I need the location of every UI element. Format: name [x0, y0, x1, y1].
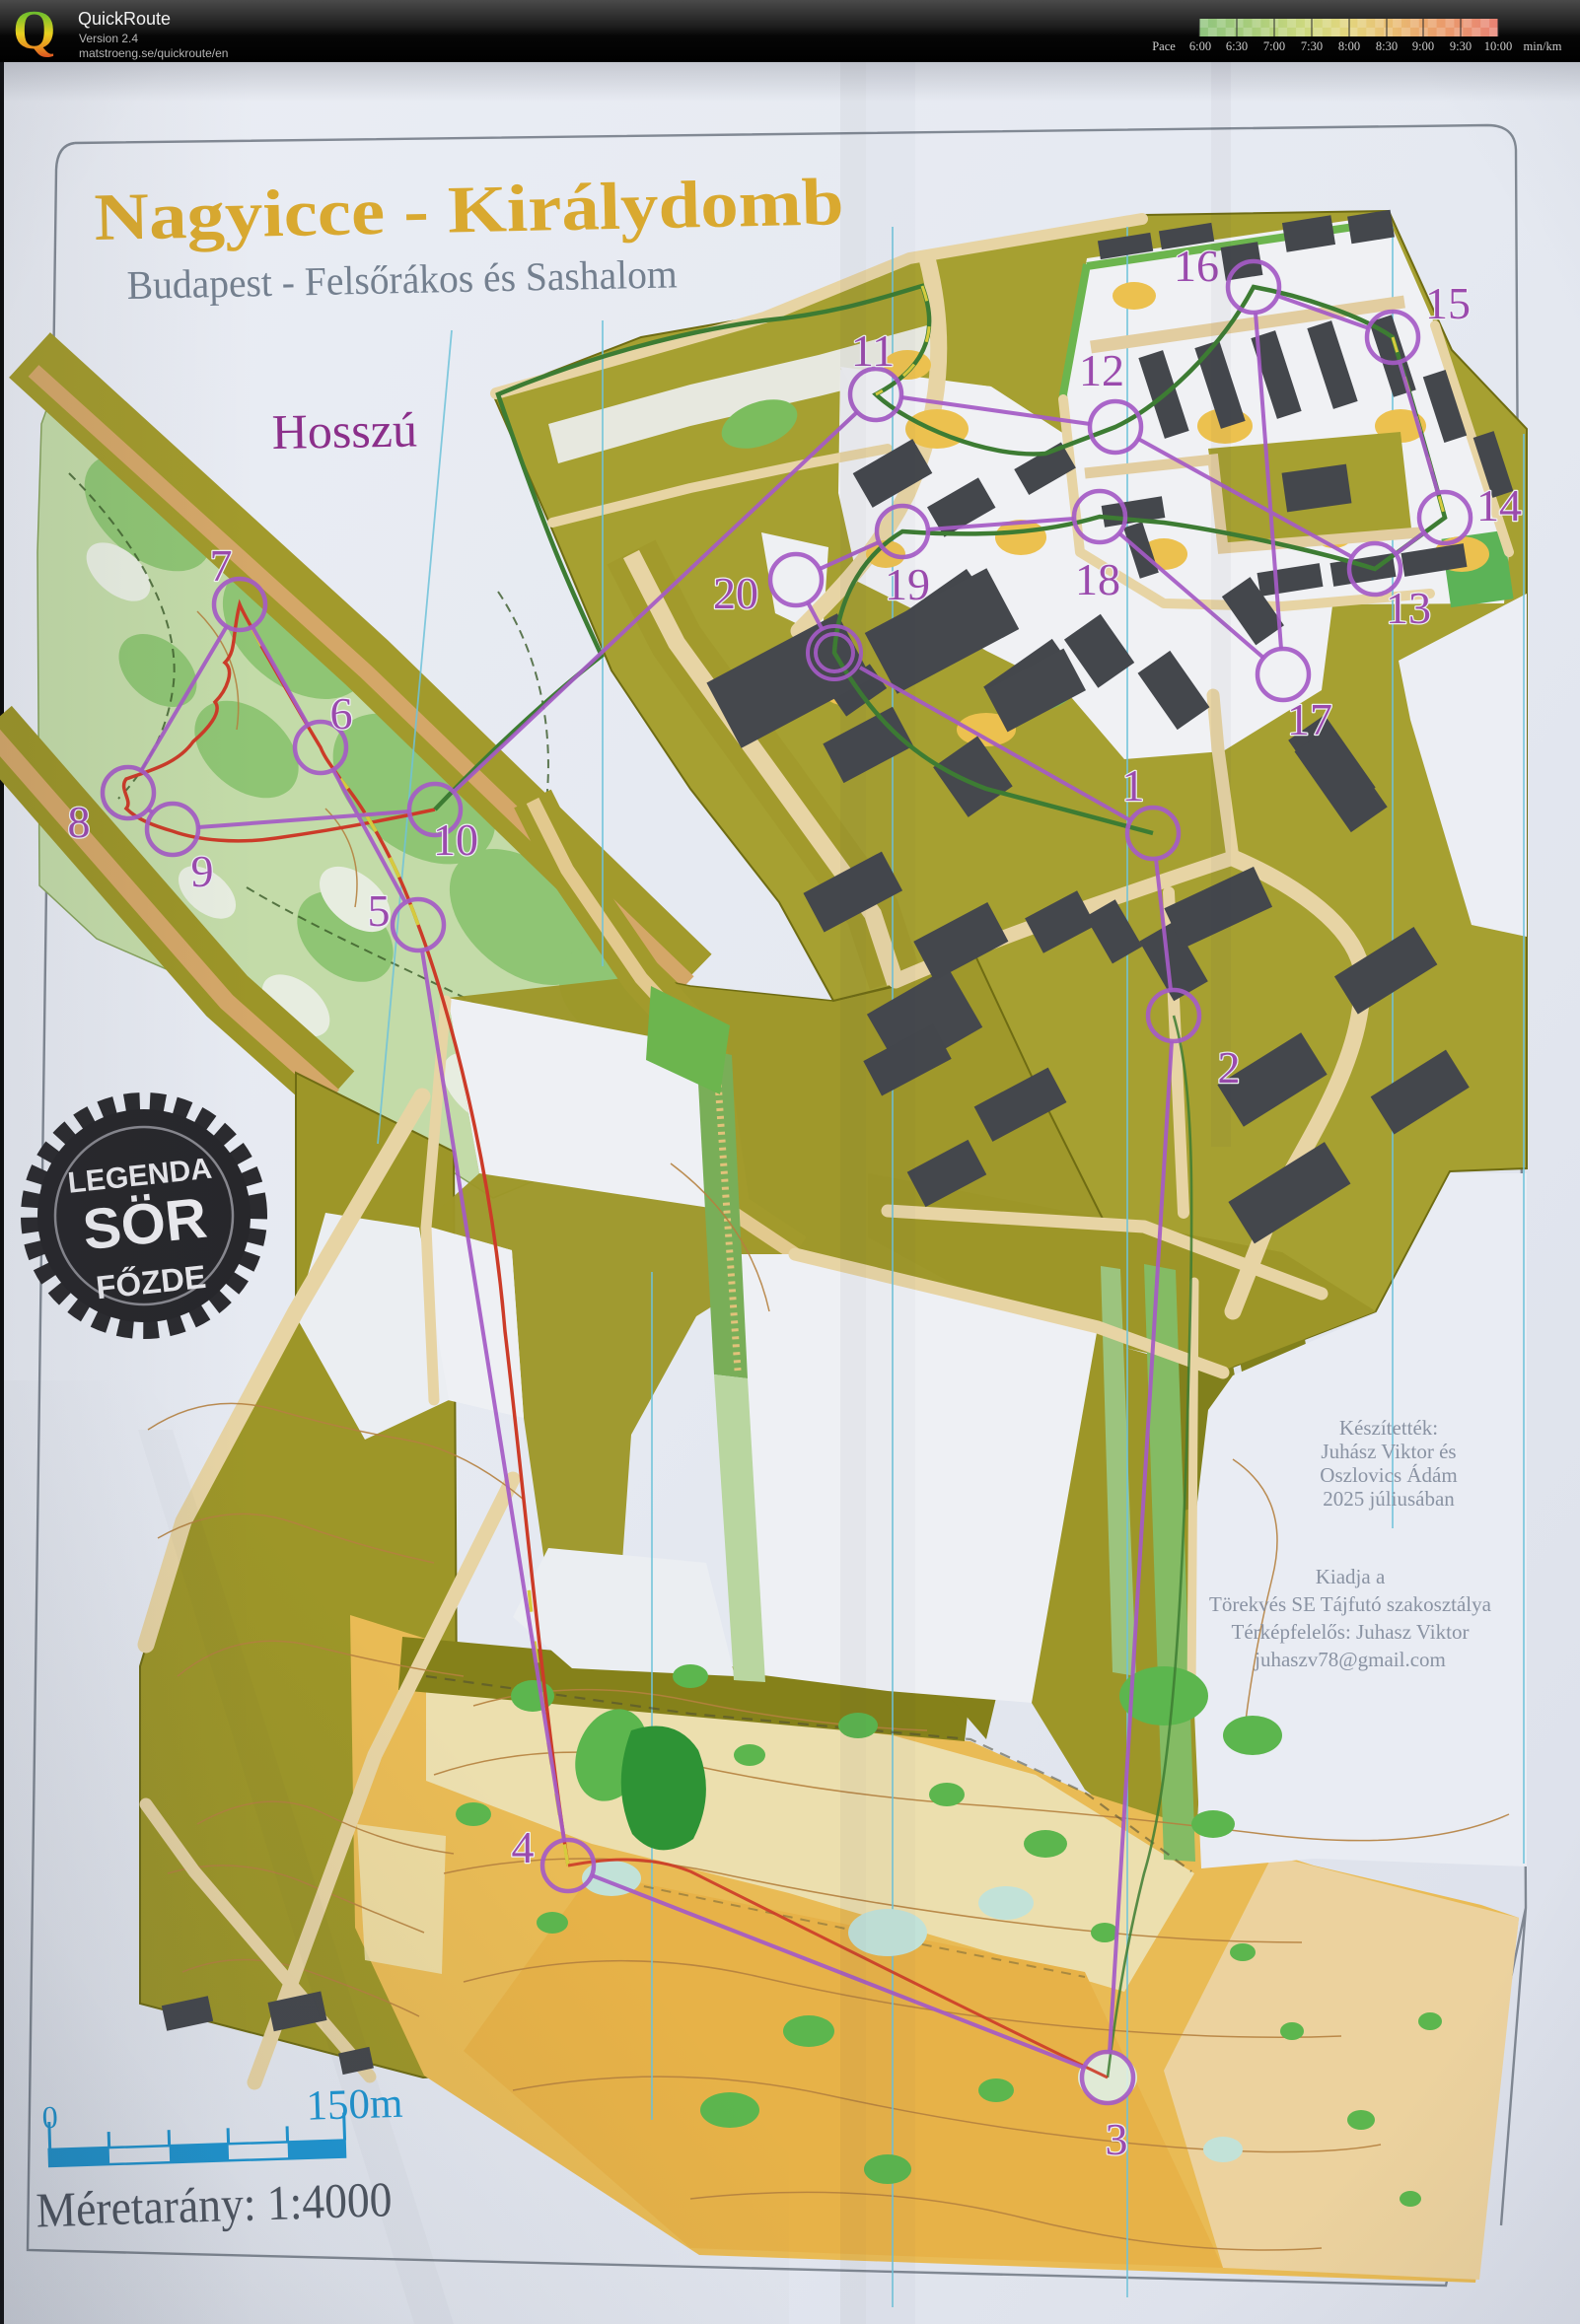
- svg-text:8:30: 8:30: [1376, 39, 1398, 53]
- svg-text:Q: Q: [13, 0, 56, 61]
- svg-text:matstroeng.se/quickroute/en: matstroeng.se/quickroute/en: [79, 46, 228, 60]
- svg-text:6:30: 6:30: [1226, 39, 1248, 53]
- svg-text:QuickRoute: QuickRoute: [78, 9, 171, 29]
- svg-text:7:00: 7:00: [1263, 39, 1285, 53]
- svg-text:8:00: 8:00: [1338, 39, 1360, 53]
- svg-text:Pace: Pace: [1152, 39, 1176, 53]
- svg-text:10:00: 10:00: [1484, 39, 1512, 53]
- svg-text:7:30: 7:30: [1301, 39, 1323, 53]
- svg-text:6:00: 6:00: [1189, 39, 1211, 53]
- svg-text:min/km: min/km: [1524, 39, 1562, 53]
- svg-text:9:30: 9:30: [1450, 39, 1472, 53]
- svg-text:9:00: 9:00: [1412, 39, 1434, 53]
- svg-text:Version 2.4: Version 2.4: [79, 32, 138, 45]
